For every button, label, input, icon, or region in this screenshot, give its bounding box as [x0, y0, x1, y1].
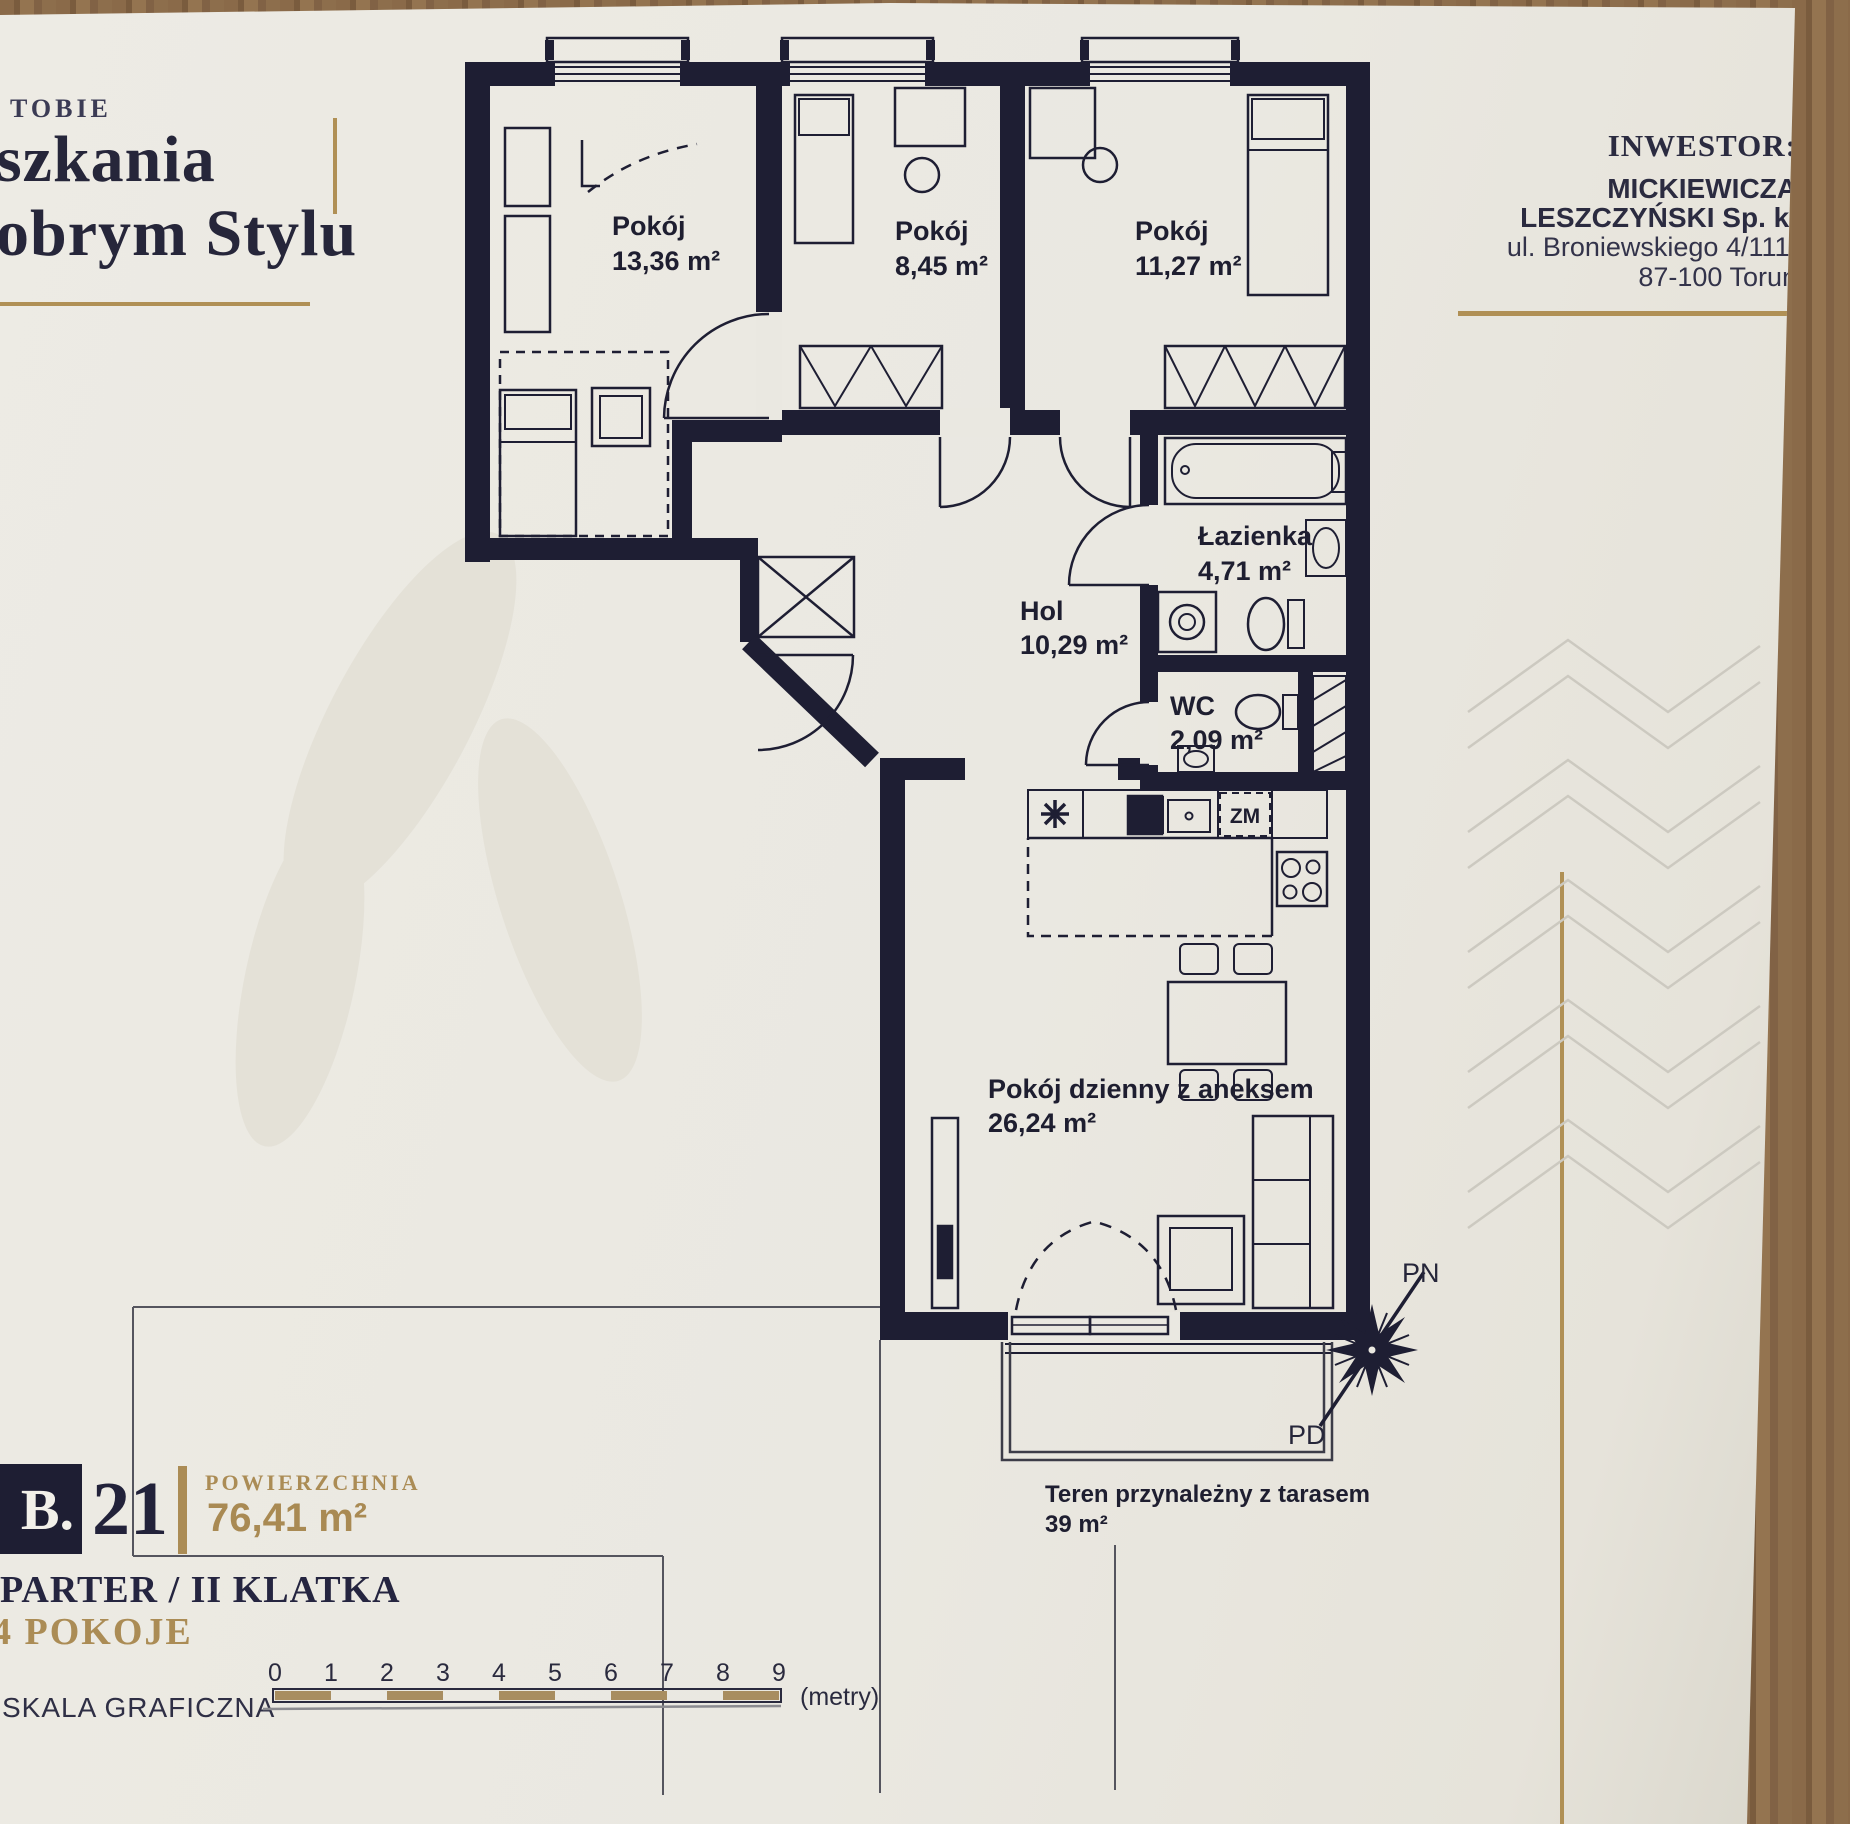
door-bathroom: [1069, 505, 1149, 585]
chair-room2: [905, 158, 939, 192]
compass-south-label: PD: [1288, 1420, 1326, 1450]
sofa: [1253, 1116, 1333, 1308]
photo-of-floor-plan: TOBIE szkania obrym Stylu INWESTOR: MICK…: [0, 0, 1850, 1824]
windows: [545, 38, 1240, 86]
duct-hatch: [1313, 676, 1346, 772]
bed-room3: [1248, 95, 1328, 295]
door-room3: [1060, 437, 1130, 507]
armchair: [1158, 1216, 1244, 1304]
desk-room2: [895, 88, 965, 146]
wardrobe-room1-b: [505, 216, 550, 332]
door-wc: [1086, 702, 1149, 765]
room3-area: 11,27 m²: [1135, 251, 1242, 281]
alcove-dashed-zone: [500, 352, 668, 536]
compass-center: [1369, 1347, 1376, 1354]
dishwasher-label: ZM: [1230, 805, 1260, 828]
living-area: 26,24 m²: [988, 1108, 1096, 1138]
hall-name: Hol: [1020, 596, 1064, 626]
tick-5: 5: [548, 1659, 562, 1687]
terrain-area: 39 m²: [1045, 1511, 1108, 1538]
wc-name: WC: [1170, 691, 1215, 721]
wc-area: 2,09 m²: [1170, 725, 1263, 755]
washing-machine: [1158, 592, 1216, 652]
door-openings: [756, 312, 1180, 1340]
bathroom-name: Łazienka: [1198, 521, 1313, 551]
bed-alcove: [500, 390, 576, 536]
floor-plan-svg: Pokój 13,36 m² Pokój 8,45 m² Pokój 11,27…: [0, 0, 1850, 1824]
scale-bar-shadow-line: [263, 1706, 781, 1709]
tick-9: 9: [772, 1659, 786, 1687]
terrain-boundaries: [133, 1307, 1115, 1795]
paper-sheet: TOBIE szkania obrym Stylu INWESTOR: MICK…: [0, 0, 1850, 1824]
wardrobe-room1-a: [505, 128, 550, 206]
terrain-name: Teren przynależny z tarasem: [1045, 1481, 1370, 1508]
tick-6: 6: [604, 1659, 618, 1687]
dashed-swing-room1: [588, 144, 697, 192]
door-room1: [664, 314, 769, 418]
leaf-watermark: [211, 502, 676, 1158]
chevron-watermark: [1468, 640, 1760, 1228]
toilet-bathroom: [1248, 598, 1304, 650]
tick-3: 3: [436, 1659, 450, 1687]
shaft-x-box: [758, 557, 854, 637]
wardrobe-room2: [800, 346, 942, 408]
tick-7: 7: [660, 1659, 674, 1687]
kitchen-sink: [1128, 796, 1210, 834]
room1-area: 13,36 m²: [612, 246, 720, 276]
tick-4: 4: [492, 1659, 506, 1687]
tv-stand: [932, 1118, 958, 1308]
tick-2: 2: [380, 1659, 394, 1687]
scale-ticks: 0 1 2 3 4 5 6 7 8 9: [268, 1659, 786, 1687]
scale-unit: (metry): [800, 1683, 879, 1711]
living-name: Pokój dzienny z aneksem: [988, 1074, 1314, 1104]
bathtub: [1165, 438, 1346, 504]
bed-room2: [795, 95, 853, 243]
tick-0: 0: [268, 1659, 282, 1687]
toilet-wc: [1236, 695, 1298, 729]
tick-1: 1: [324, 1659, 338, 1687]
tick-8: 8: [716, 1659, 730, 1687]
door-room2: [940, 437, 1010, 507]
room2-name: Pokój: [895, 216, 969, 246]
window-1: [545, 38, 690, 86]
window-2: [780, 38, 935, 86]
compass-north-label: PN: [1402, 1258, 1440, 1288]
window-3: [1080, 38, 1240, 86]
hall-area: 10,29 m²: [1020, 630, 1128, 660]
swing-bracket: [582, 140, 600, 186]
wardrobe-room3: [1165, 346, 1345, 408]
stove: [1277, 852, 1327, 906]
desk-room3: [1030, 88, 1095, 158]
room1-name: Pokój: [612, 211, 686, 241]
room2-area: 8,45 m²: [895, 251, 988, 281]
scale-bar: 0 1 2 3 4 5 6 7 8 9 (metry): [263, 1659, 879, 1711]
chair-room3: [1083, 148, 1117, 182]
kitchen-island: [1028, 838, 1272, 936]
bathroom-area: 4,71 m²: [1198, 556, 1291, 586]
fridge-star-symbol: [1041, 800, 1069, 828]
kitchen-counter: [1028, 790, 1327, 838]
room3-name: Pokój: [1135, 216, 1209, 246]
terrace-outline: [1002, 1342, 1332, 1460]
scale-bar-segments: [275, 1691, 779, 1700]
alcove-table-inner: [600, 396, 642, 438]
